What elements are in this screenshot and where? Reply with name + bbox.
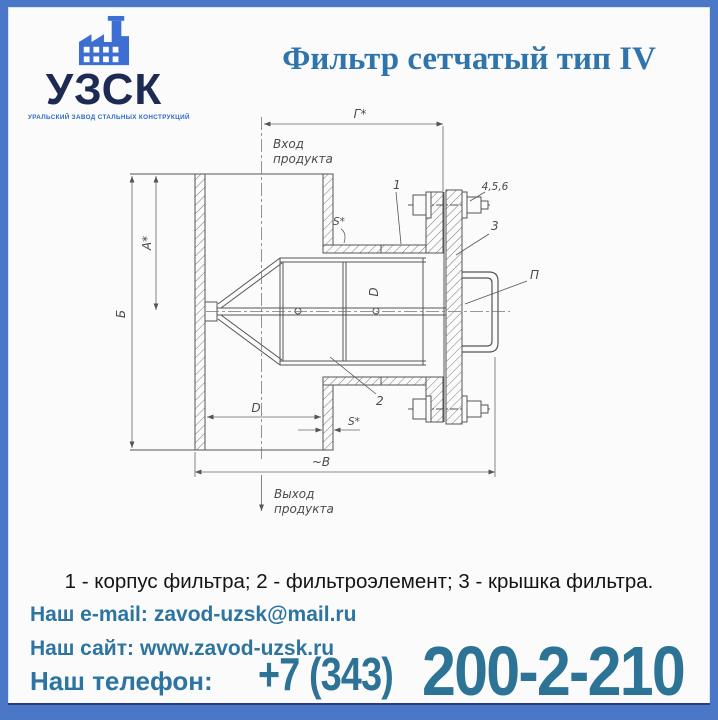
filter-cover xyxy=(444,190,462,424)
site-label: Наш сайт: xyxy=(30,637,134,660)
drawing-caption: 1 - корпус фильтра; 2 - фильтроэлемент; … xyxy=(8,570,710,594)
dim-w-label: ~В xyxy=(312,455,330,469)
svg-text:продукта: продукта xyxy=(274,502,334,516)
dim-d-label: D xyxy=(251,401,260,415)
phone-label: Наш телефон: xyxy=(30,666,213,697)
dim-g-label: Г* xyxy=(354,107,367,121)
phone-number: 200-2-210 xyxy=(422,644,684,699)
callout-1: 1 xyxy=(393,178,401,192)
dim-s-top-label: S* xyxy=(333,216,345,228)
callout-2: 2 xyxy=(376,394,384,408)
email-value: zavod-uzsk@mail.ru xyxy=(154,603,357,626)
dimensions xyxy=(132,124,495,511)
page-title: Фильтр сетчатый тип IV xyxy=(236,41,702,78)
email-line: Наш e-mail:zavod-uzsk@mail.ru xyxy=(30,603,356,627)
technical-drawing: Вход продукта Выход продукта Г* А* Б ~В … xyxy=(108,97,548,545)
email-label: Наш e-mail: xyxy=(30,603,148,626)
page-frame: УЗСК УРАЛЬСКИЙ ЗАВОД СТАЛЬНЫХ КОНСТРУКЦИ… xyxy=(0,0,718,720)
callout-3: 3 xyxy=(491,219,499,233)
callout-handle: П xyxy=(530,268,539,282)
dim-a-label: А* xyxy=(140,236,154,251)
outlet-label: Выход xyxy=(274,487,314,501)
svg-text:продукта: продукта xyxy=(273,152,333,166)
dim-b-label: Б xyxy=(114,310,128,318)
filter-body xyxy=(130,174,443,450)
cover-handle xyxy=(462,272,498,352)
dim-s-bottom-label: S* xyxy=(348,416,360,428)
factory-icon xyxy=(75,15,133,67)
callout-456: 4,5,6 xyxy=(482,181,509,193)
inlet-label: Вход xyxy=(273,137,304,151)
dim-d-side-label: D xyxy=(367,287,381,296)
phone-prefix: +7 (343) xyxy=(258,656,393,693)
